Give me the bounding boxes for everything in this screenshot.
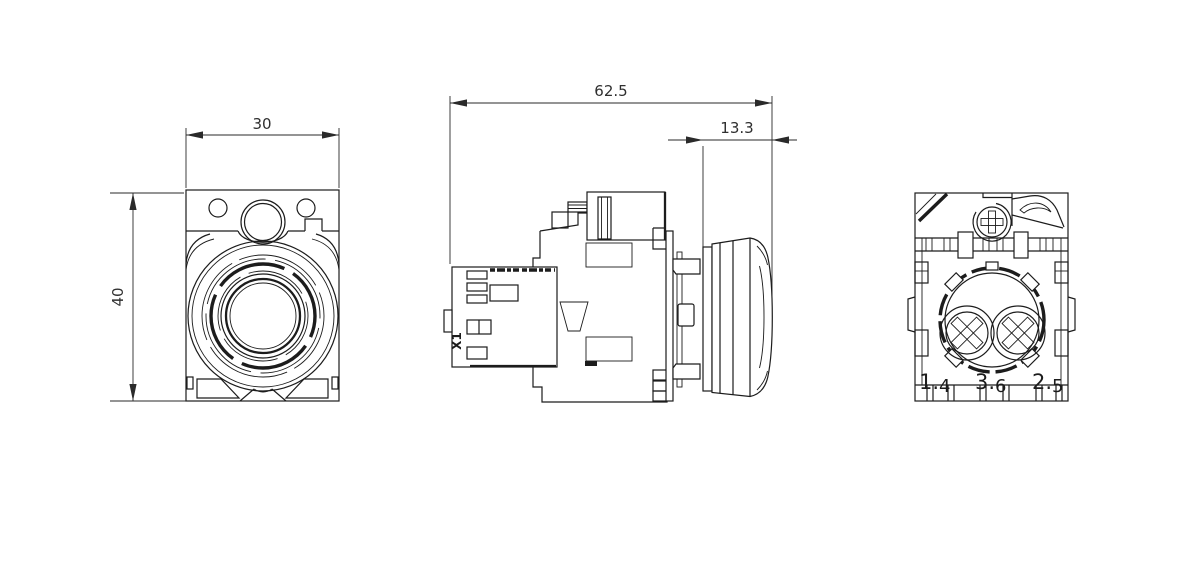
technical-drawing-canvas: 30 40 xyxy=(0,0,1187,585)
rear-upper-rail xyxy=(915,232,1068,258)
side-mounting-flange xyxy=(666,231,712,401)
side-view: 62.5 13.3 xyxy=(444,82,797,402)
terminal-number-1-4: 1.4 xyxy=(919,370,951,397)
screw-terminal-left xyxy=(940,306,994,360)
dimension-front-height: 40 xyxy=(109,193,190,401)
dimension-front-width: 30 xyxy=(186,115,339,188)
rear-view: 1.4 3.6 2.5 xyxy=(908,193,1075,401)
dim-label-13-3: 13.3 xyxy=(720,119,753,137)
rear-side-features xyxy=(908,262,1075,356)
side-button-head xyxy=(712,238,772,397)
dim-label-40: 40 xyxy=(109,287,127,306)
dim-label-30: 30 xyxy=(252,115,271,133)
rear-terminal-band: 1.4 3.6 2.5 xyxy=(915,370,1068,401)
front-top-boss xyxy=(241,200,285,244)
dimension-front-projection: 13.3 xyxy=(668,119,797,252)
pushbutton-engineering-drawing: 30 40 xyxy=(0,0,1187,585)
front-mount-hole-right xyxy=(297,199,315,217)
terminal-number-3-6: 3.6 xyxy=(975,370,1007,397)
terminal-number-2-5: 2.5 xyxy=(1032,370,1064,397)
side-connector-module: X1 xyxy=(444,267,557,367)
rear-corner-chamfer xyxy=(916,194,947,221)
dim-label-62-5: 62.5 xyxy=(594,82,627,100)
front-button-rings xyxy=(188,241,338,391)
front-button-cap xyxy=(226,279,300,353)
front-view: 30 40 xyxy=(109,115,339,401)
front-mount-hole-left xyxy=(209,199,227,217)
rear-bayonet-ring xyxy=(940,262,1044,372)
terminal-label-x1: X1 xyxy=(450,332,464,350)
rear-top-screw xyxy=(973,204,1011,242)
rear-latch-claw xyxy=(1012,193,1064,228)
